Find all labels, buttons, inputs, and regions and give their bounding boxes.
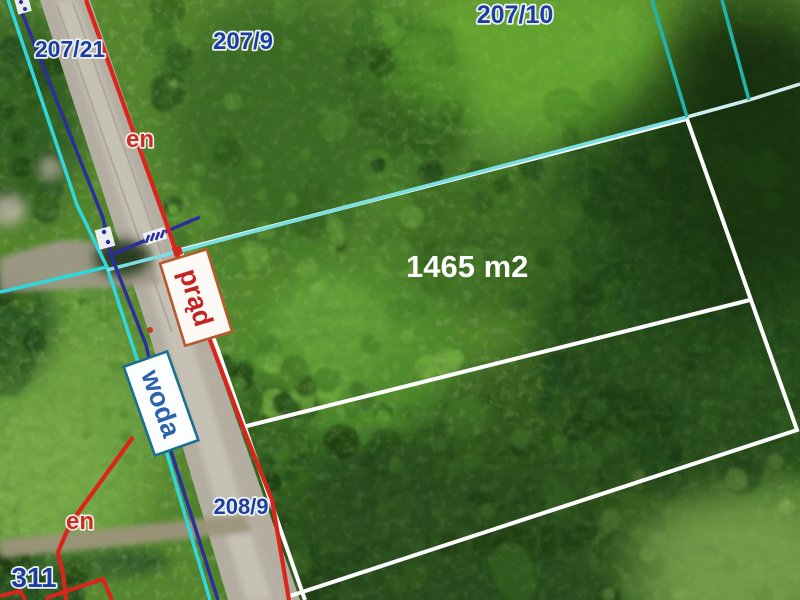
svg-text:207/9: 207/9 bbox=[213, 28, 273, 55]
svg-text:en: en bbox=[66, 508, 94, 535]
svg-text:207/10: 207/10 bbox=[477, 1, 553, 29]
svg-text:1465 m2: 1465 m2 bbox=[406, 249, 528, 284]
svg-text:208/9: 208/9 bbox=[213, 494, 268, 519]
svg-text:207/21: 207/21 bbox=[35, 36, 106, 62]
svg-text:311: 311 bbox=[11, 562, 56, 593]
svg-text:en: en bbox=[126, 126, 154, 153]
